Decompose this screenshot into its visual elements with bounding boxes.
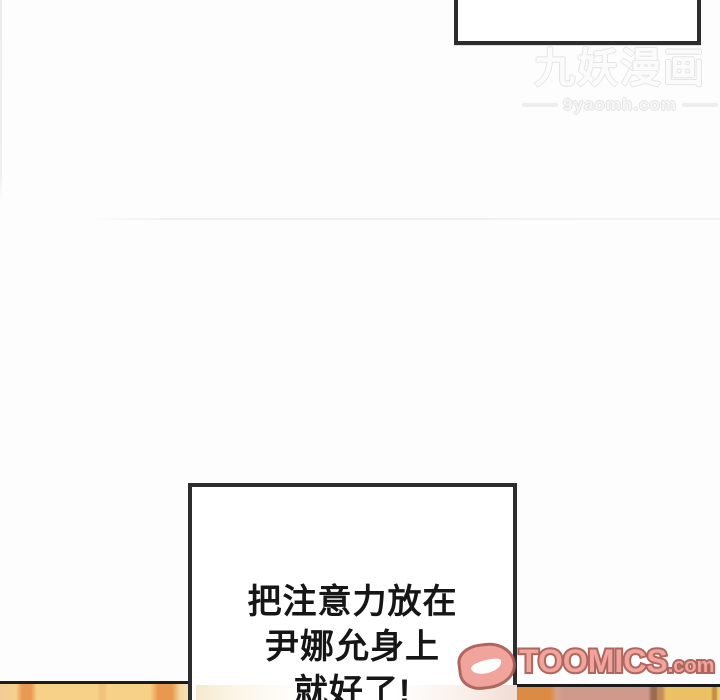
faint-panel-divider [90, 218, 720, 220]
toomics-tld: .com [668, 655, 715, 677]
watermark-dash-right [682, 103, 718, 107]
toomics-watermark: TOOMICS.com [458, 639, 714, 689]
next-panel-left-edge [0, 681, 190, 700]
toomics-smile-icon [455, 640, 518, 693]
site-watermark: 九妖漫画 9yaomh.com [520, 48, 720, 115]
watermark-site-url: 9yaomh.com [563, 95, 677, 115]
watermark-title: 九妖漫画 [520, 48, 720, 88]
comic-page: 九妖漫画 9yaomh.com 把注意力放在 尹娜允身上 就好了! TOOMIC… [0, 0, 720, 700]
toomics-smile-mouth [470, 656, 503, 677]
left-edge-scan-line [0, 0, 2, 202]
speech-bubble-top [454, 0, 701, 45]
watermark-site-row: 9yaomh.com [520, 95, 720, 115]
toomics-brand: TOOMICS [519, 643, 668, 679]
speech-line-1: 把注意力放在 [192, 580, 513, 625]
watermark-dash-left [522, 103, 558, 107]
toomics-logo-text: TOOMICS.com [519, 644, 714, 683]
